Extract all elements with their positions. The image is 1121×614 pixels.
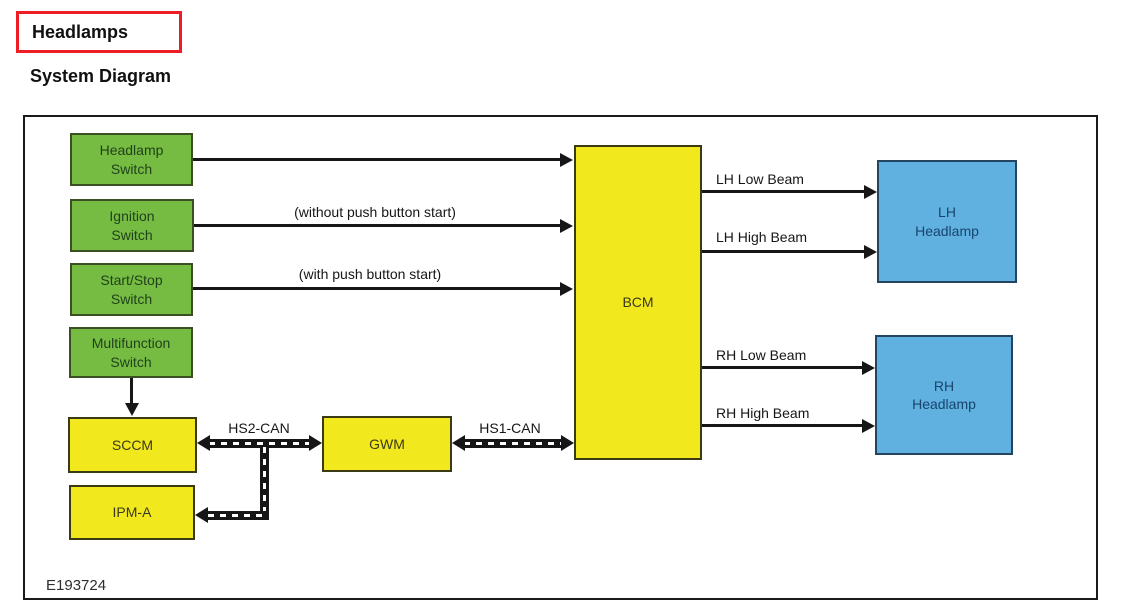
label-lh-low-beam: LH Low Beam [716, 171, 804, 187]
page-title-box: Headlamps [16, 11, 182, 53]
node-lh-headlamp: LH Headlamp [877, 160, 1017, 283]
node-sccm: SCCM [68, 417, 197, 473]
label-lh-high-beam: LH High Beam [716, 229, 807, 245]
arrowhead-hs1-gwm [452, 435, 465, 451]
node-bcm: BCM [574, 145, 702, 460]
arrow-start-stop-switch-to-bcm [193, 287, 561, 290]
figure-id: E193724 [46, 577, 106, 594]
can-bus-hs1 [463, 439, 562, 448]
node-multifunction-switch: Multifunction Switch [69, 327, 193, 378]
arrow-ignition-switch-to-bcm [194, 224, 561, 227]
section-heading: System Diagram [30, 66, 171, 87]
arrow-multifunction-switch-to-sccm [130, 378, 133, 404]
node-ignition-switch: Ignition Switch [70, 199, 194, 252]
node-ipm-a: IPM-A [69, 485, 195, 540]
arrow-bcm-rh-low-beam [702, 366, 863, 369]
bus-dashes [263, 447, 266, 519]
label-hs1-can: HS1-CAN [459, 420, 561, 436]
arrowhead-hs2-sccm [197, 435, 210, 451]
arrowhead-hs2-ipm-a [195, 507, 208, 523]
page-title: Headlamps [32, 22, 128, 43]
can-bus-hs2-branch-to-ipm-a [207, 511, 269, 520]
arrowhead-hs2-gwm [309, 435, 322, 451]
arrow-bcm-lh-high-beam [702, 250, 865, 253]
can-bus-hs2-branch-vertical [260, 446, 269, 520]
bus-dashes [464, 442, 561, 445]
arrow-bcm-rh-high-beam [702, 424, 863, 427]
node-rh-headlamp: RH Headlamp [875, 335, 1013, 455]
label-rh-high-beam: RH High Beam [716, 405, 809, 421]
label-hs2-can: HS2-CAN [209, 420, 309, 436]
node-headlamp-switch: Headlamp Switch [70, 133, 193, 186]
arrow-headlamp-switch-to-bcm [193, 158, 561, 161]
bus-dashes [209, 442, 310, 445]
node-start-stop-switch: Start/Stop Switch [70, 263, 193, 316]
label-rh-low-beam: RH Low Beam [716, 347, 806, 363]
node-gwm: GWM [322, 416, 452, 472]
bus-dashes [208, 514, 268, 517]
arrowhead-hs1-bcm [561, 435, 574, 451]
label-with-push-button-start: (with push button start) [245, 266, 495, 282]
label-without-push-button-start: (without push button start) [245, 204, 505, 220]
arrow-bcm-lh-low-beam [702, 190, 865, 193]
page: Headlamps System Diagram Headlamp Switch… [0, 0, 1121, 614]
